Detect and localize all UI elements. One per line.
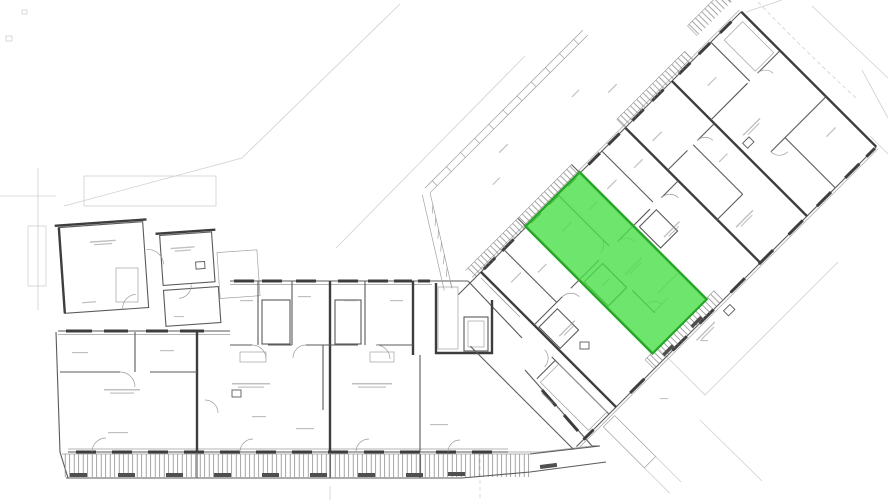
floor-plan-canvas: Building floor plan xyxy=(0,0,888,500)
